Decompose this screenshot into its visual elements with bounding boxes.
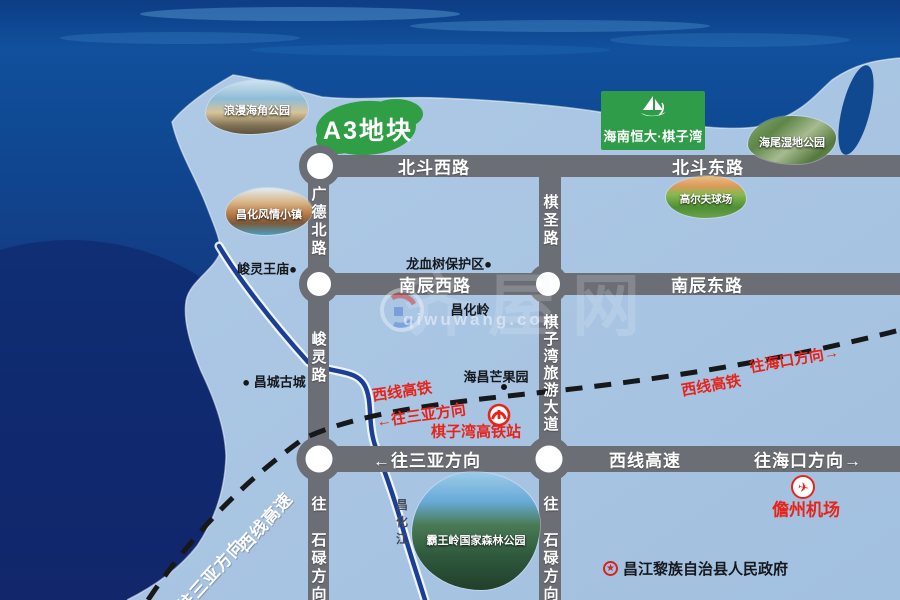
county-government-label: 昌江黎族自治县人民政府: [623, 558, 788, 579]
changhua-town-label: 昌化风情小镇: [236, 206, 302, 222]
rail-station-label: 棋子湾高铁站: [431, 421, 521, 442]
photo-wetland-park: 海尾湿地公园: [748, 116, 836, 164]
airplane-glyph: ✈: [797, 480, 810, 495]
bawangling-label: 霸王岭国家森林公园: [427, 532, 526, 548]
road-label-beidou-west: 北斗西路: [398, 154, 470, 179]
a3-plot-label: A3地块: [323, 111, 413, 147]
star-icon: ★: [603, 561, 618, 576]
road-label-qisheng: 棋圣路: [540, 194, 561, 248]
location-map: 齐屋网 qiwuwang.com 浪漫海角公园 昌化风情小镇 海尾湿地公园 高尔…: [0, 0, 900, 600]
road-label-nanchen-west: 南辰西路: [399, 272, 471, 297]
poi-mango-garden: 海昌芒果园: [463, 367, 528, 386]
developer-logo-title: 海南恒大·棋子湾: [603, 126, 702, 145]
mango-garden-dot: [501, 384, 507, 390]
poi-junling-temple: 峻灵王庙●: [237, 259, 297, 278]
road-label-to-haikou: 往海口方向→: [754, 447, 862, 472]
poi-county-government: ★ 昌江黎族自治县人民政府: [603, 558, 788, 579]
poi-danzhou-airport: 儋州机场: [772, 496, 840, 521]
developer-logo: 海南恒大·棋子湾: [601, 91, 705, 150]
road-label-to-shilu-west: 往 石碌方向: [308, 496, 329, 600]
golf-course-label: 高尔夫球场: [680, 192, 733, 207]
poi-dragon-tree-reserve: 龙血树保护区●: [406, 254, 492, 273]
road-label-junling: 峻灵路: [308, 331, 329, 385]
sailboat-icon: [635, 94, 671, 124]
poi-changhua-river: 昌化江: [394, 499, 411, 550]
road-label-to-sanya: ←往三亚方向: [373, 447, 481, 472]
road-label-beidou-east: 北斗东路: [672, 154, 744, 179]
road-label-qiziwan-avenue: 棋子湾旅游大道: [540, 314, 561, 433]
wetland-park-label: 海尾湿地公园: [759, 134, 825, 150]
cape-park-label: 浪漫海角公园: [224, 102, 290, 118]
road-label-to-shilu-east: 往 石碌方向: [540, 496, 561, 600]
poi-ancient-city: ● 昌城古城: [242, 372, 305, 391]
photo-golf-course: 高尔夫球场: [666, 176, 746, 218]
photo-bawangling-park: 霸王岭国家森林公园: [412, 472, 540, 590]
star-glyph: ★: [606, 564, 615, 574]
poi-changhua-ridge: 昌化岭: [450, 300, 489, 319]
road-label-xixian-expressway: 西线高速: [609, 447, 681, 472]
road-label-guangde-north: 广德北路: [308, 186, 329, 258]
road-label-nanchen-east: 南辰东路: [671, 272, 743, 297]
